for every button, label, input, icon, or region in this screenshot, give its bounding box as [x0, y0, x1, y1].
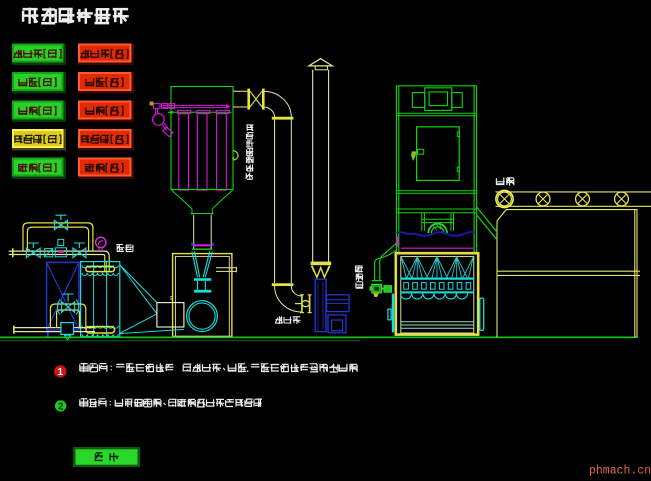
- svg-text:1: 1: [58, 367, 64, 378]
- svg-text:2: 2: [58, 402, 64, 413]
- svg-text:phmach.cn: phmach.cn: [589, 465, 651, 478]
